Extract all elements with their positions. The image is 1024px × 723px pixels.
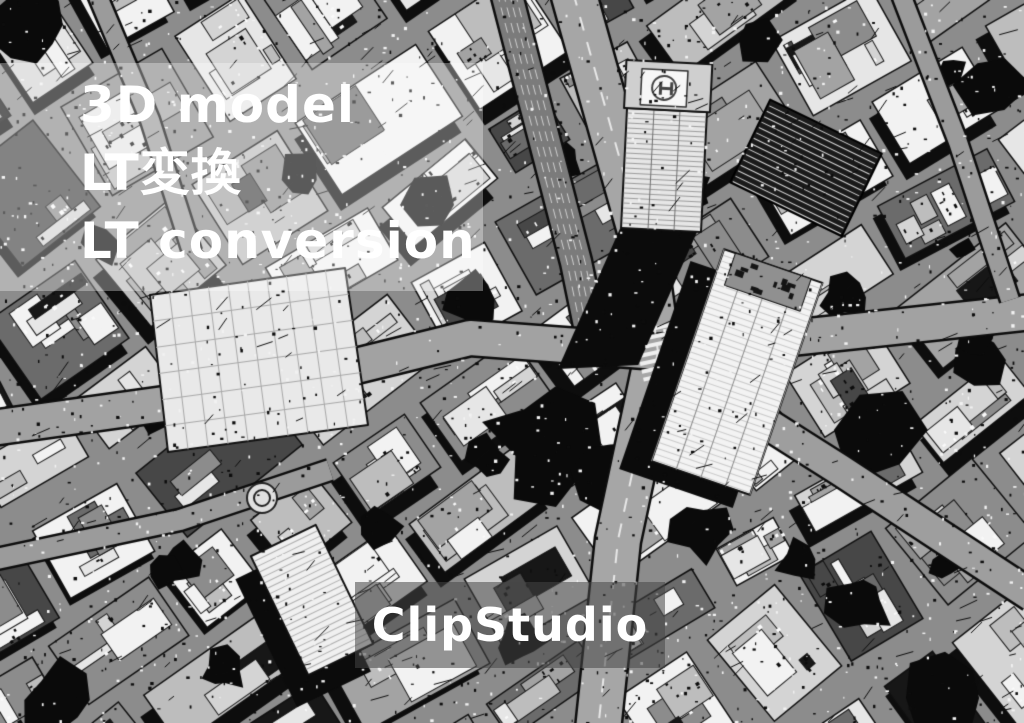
brand-band: ClipStudio	[355, 582, 665, 668]
title-line-lt-henkan: LT変換	[80, 139, 483, 207]
title-line-3d-model: 3D model	[80, 71, 483, 139]
title-line-lt-conversion: LT conversion	[80, 207, 483, 275]
brand-label: ClipStudio	[372, 598, 648, 652]
promo-banner: 3D model LT変換 LT conversion ClipStudio	[0, 0, 1024, 723]
title-overlay-panel: 3D model LT変換 LT conversion	[0, 63, 483, 291]
